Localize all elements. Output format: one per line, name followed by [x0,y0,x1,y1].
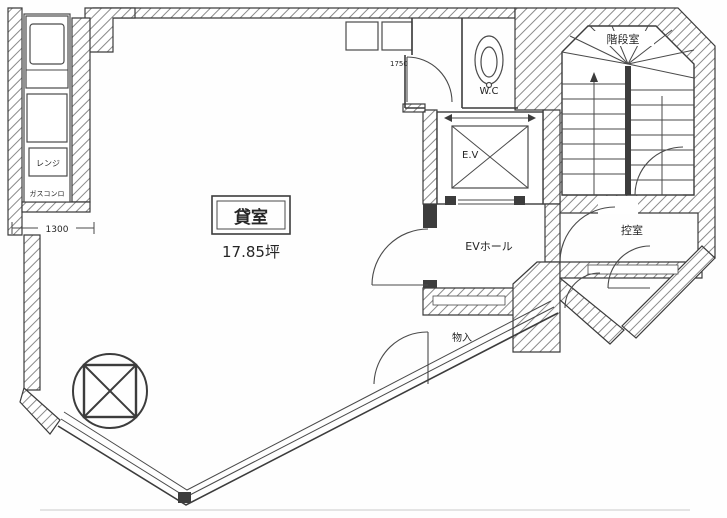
east-chamfer-wall [622,246,715,338]
sanitary-block: 1750 W.C [346,18,518,108]
elevator-right-wall [543,110,560,204]
hall-wall-stub-bottom [423,280,437,288]
storage-label: 物入 [452,331,472,344]
counter-fixture-left [346,22,378,50]
elevator: E.V [437,112,543,208]
elevator-door-jamb-right [514,196,525,205]
ev-hall-label: EVホール [465,240,512,253]
elevator-label: E.V [462,150,478,161]
anteroom-window-slot [588,265,678,274]
main-room-area: 17.85坪 [222,243,280,261]
top-wall-band [93,8,515,18]
elevator-left-wall [423,110,437,204]
stair-center-divider [625,66,631,195]
range-label: レンジ [36,159,60,168]
kitchen-dimension: 1300 [12,222,94,235]
south-window-band [58,301,558,505]
column-symbol-icon [73,354,147,428]
anteroom-door-top-arc [560,207,615,262]
main-room-label: 貸室 [233,207,268,228]
entry-door-arc [372,229,428,285]
kitchen-right-wall [72,18,90,202]
ev-hall: EVホール [372,204,513,288]
kitchen-sink [30,24,64,64]
window-band-joint [178,492,191,503]
southwest-corner-block [20,388,60,434]
storage: 物入 [374,331,472,384]
below-hall-window-slot [433,296,505,305]
west-lower-wall [24,235,40,390]
kitchen-left-wall [8,8,22,235]
stair-door-gap [598,196,638,214]
entry-dimension-value: 1750 [390,60,408,68]
toilet-bowl-inner [481,47,497,77]
kitchen-fridge [27,94,67,142]
floor-plan-drawing: 階段室 レンジ ガスコンロ 1300 1750 [0,0,727,518]
hall-anteroom-wall [545,204,560,262]
kitchen-bottom-wall [22,202,90,212]
wc-label: W.C [480,86,499,97]
stairwell: 階段室 [562,26,694,214]
top-left-pier [85,8,135,52]
counter-fixture-right [382,22,412,50]
kitchen-dimension-value: 1300 [46,225,69,235]
floor-plan-page: 階段室 レンジ ガスコンロ 1300 1750 [0,0,727,518]
powder-room-door-arc [407,57,452,102]
gas-stove-label: ガスコンロ [30,189,65,198]
elevator-door-jamb-left [445,196,456,205]
anteroom-label: 控室 [621,223,643,237]
stairwell-label: 階段室 [607,32,640,46]
hall-wall-stub-top [423,204,437,228]
